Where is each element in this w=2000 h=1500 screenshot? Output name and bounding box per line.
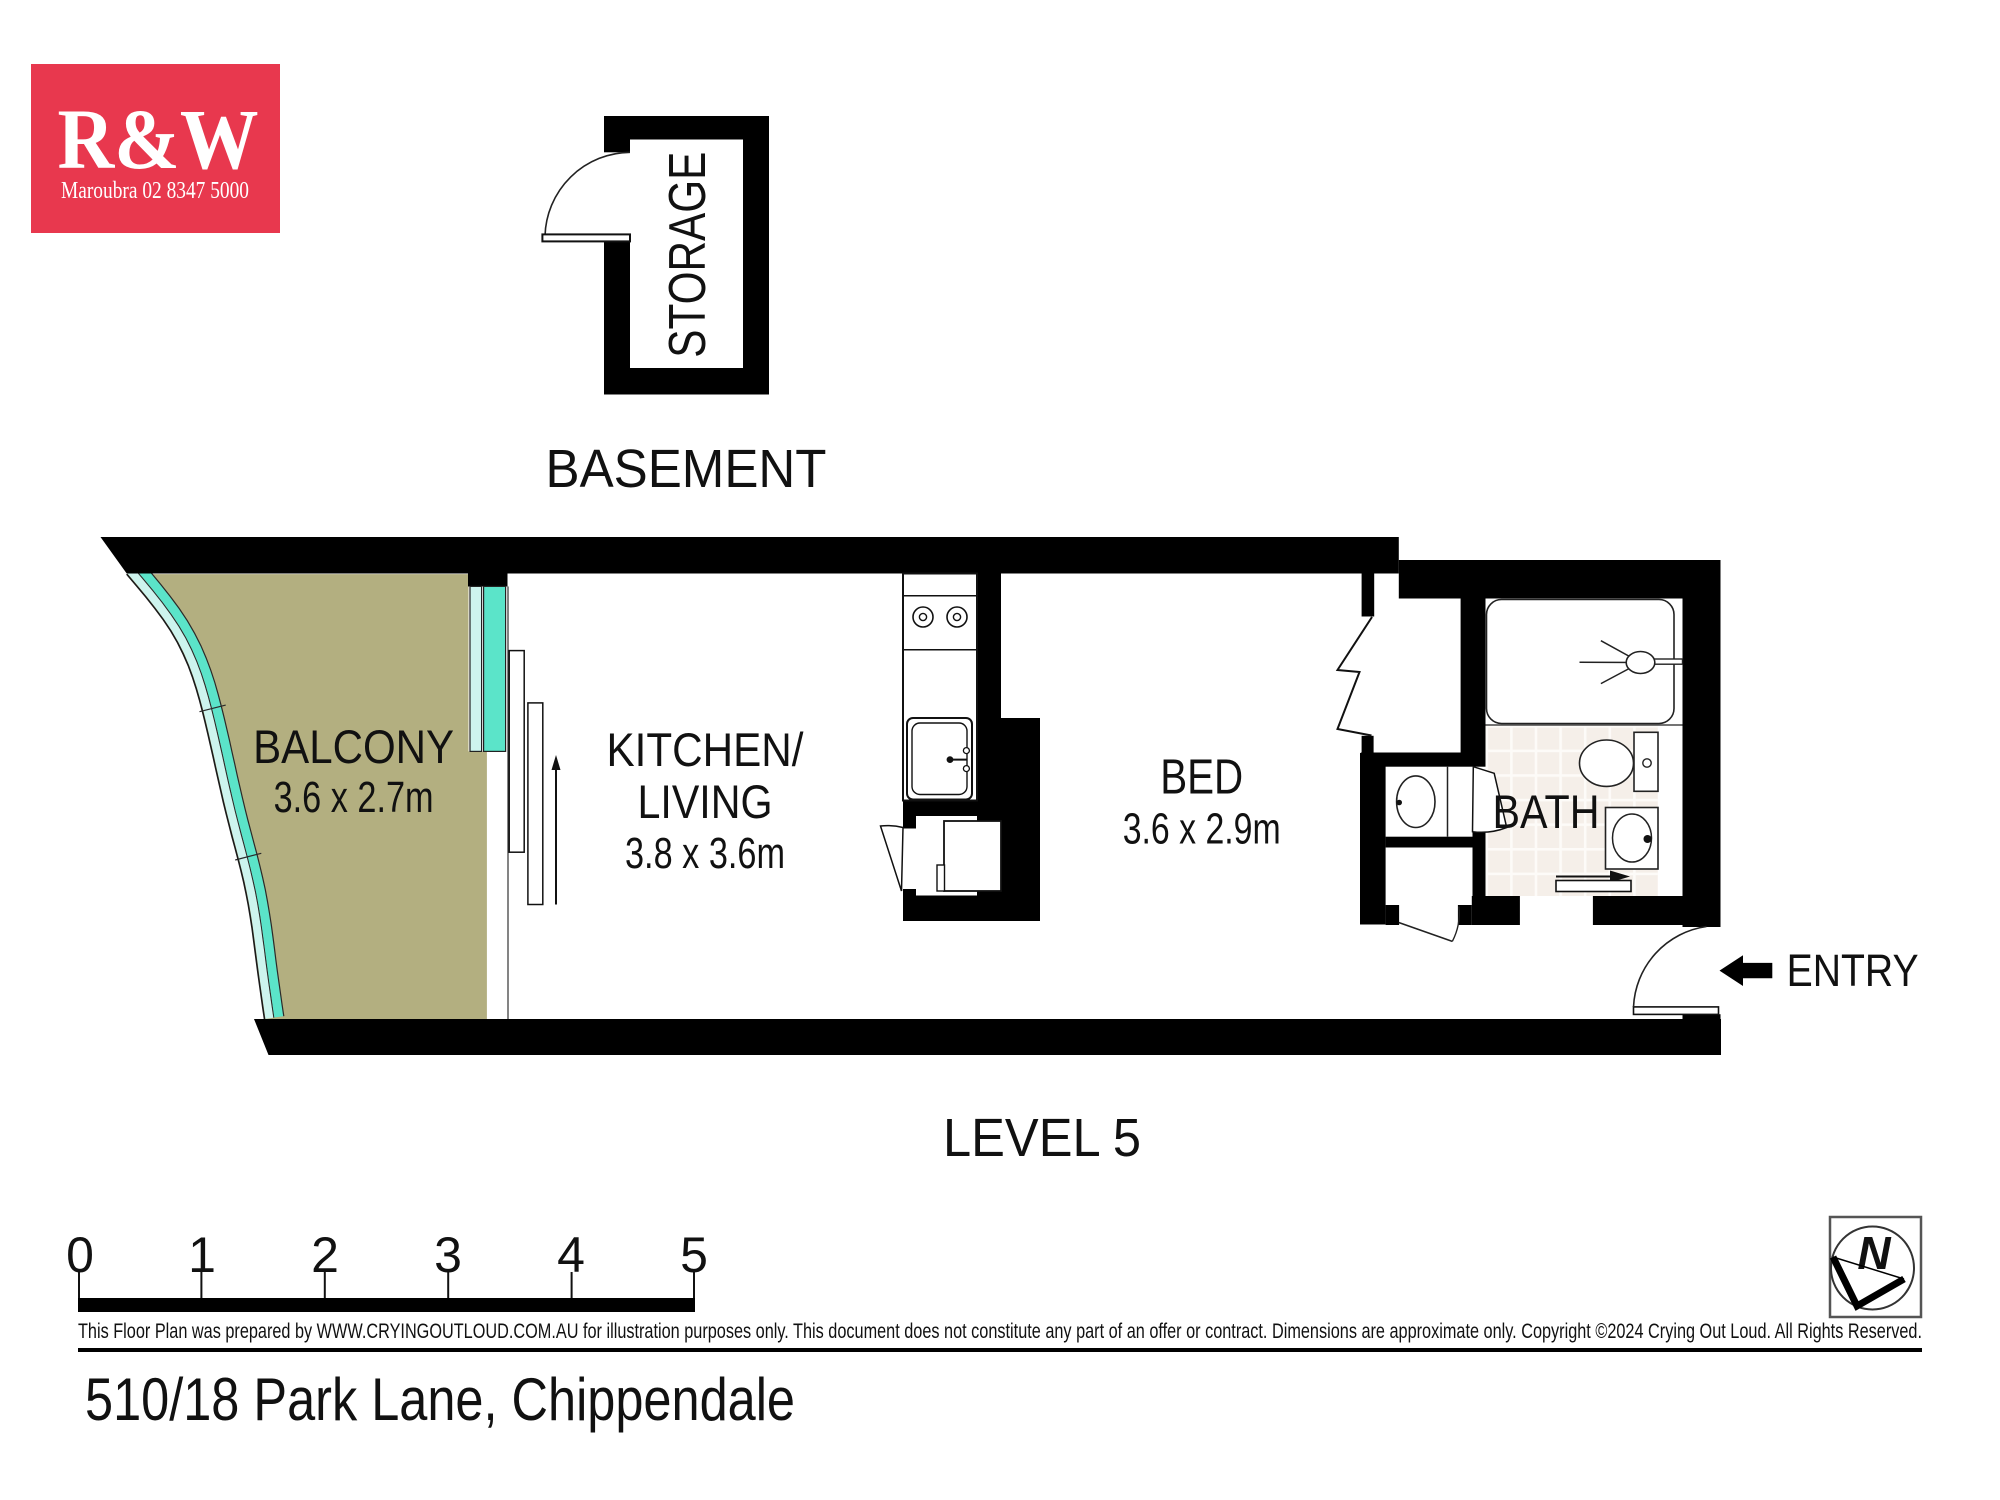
svg-text:R&W: R&W <box>58 91 259 187</box>
svg-text:1: 1 <box>188 1227 216 1283</box>
svg-text:BASEMENT: BASEMENT <box>546 439 827 499</box>
svg-text:This Floor Plan was prepared b: This Floor Plan was prepared by WWW.CRYI… <box>78 1319 1922 1343</box>
svg-text:BATH: BATH <box>1493 785 1600 838</box>
svg-text:LEVEL 5: LEVEL 5 <box>943 1108 1141 1168</box>
svg-text:KITCHEN/: KITCHEN/ <box>607 723 805 776</box>
svg-text:LIVING: LIVING <box>638 775 773 828</box>
svg-text:3: 3 <box>434 1227 462 1283</box>
svg-text:STORAGE: STORAGE <box>659 152 717 358</box>
svg-text:5: 5 <box>680 1227 708 1283</box>
svg-text:N: N <box>1857 1227 1891 1279</box>
svg-text:Maroubra 02 8347 5000: Maroubra 02 8347 5000 <box>61 178 249 204</box>
svg-text:3.6 x 2.7m: 3.6 x 2.7m <box>274 773 434 822</box>
svg-text:510/18 Park Lane, Chippendale: 510/18 Park Lane, Chippendale <box>85 1366 795 1433</box>
svg-text:0: 0 <box>66 1227 94 1283</box>
svg-text:BED: BED <box>1160 751 1243 805</box>
svg-text:BALCONY: BALCONY <box>253 720 454 773</box>
svg-text:3.6 x 2.9m: 3.6 x 2.9m <box>1123 805 1281 854</box>
svg-text:4: 4 <box>557 1227 585 1283</box>
svg-text:3.8 x 3.6m: 3.8 x 3.6m <box>625 829 785 878</box>
svg-text:ENTRY: ENTRY <box>1787 945 1919 996</box>
svg-text:2: 2 <box>311 1227 339 1283</box>
